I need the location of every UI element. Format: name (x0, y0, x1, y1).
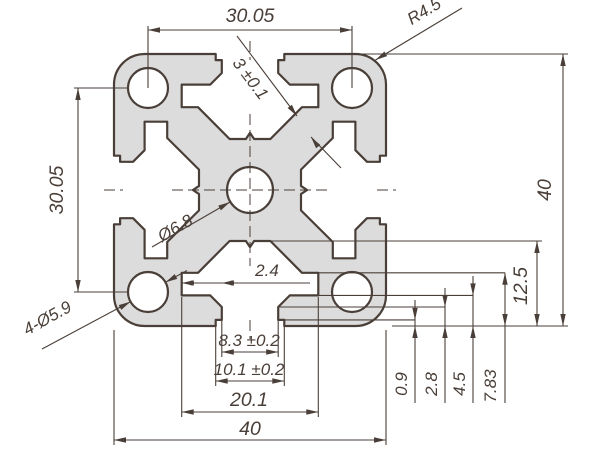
arrowhead (306, 409, 318, 414)
arrowhead (266, 349, 278, 354)
arrowhead (470, 283, 475, 295)
arrowhead (560, 314, 565, 326)
dim-web-thickness: 3 ±0.1 (229, 54, 273, 103)
dim-overall-width: 40 (239, 418, 261, 440)
dimension-dot (189, 281, 194, 286)
arrowhead (502, 273, 507, 285)
corner-hole-bottom-left (128, 272, 168, 312)
dim-overall-height: 40 (534, 179, 556, 201)
dimension-dot (229, 281, 234, 286)
corner-hole-bottom-right (332, 272, 372, 312)
dim-slot-depth: 12.5 (510, 267, 532, 305)
arrowhead (560, 54, 565, 66)
extrusion-profile-drawing: 30.05 30.05 R4.5 3 ±0.1 Ø6.8 4-Ø5.9 2.4 … (0, 0, 600, 450)
dim-corner-holes: 4-Ø5.9 (20, 297, 75, 339)
arrowhead (182, 409, 194, 414)
center-hole (227, 167, 273, 213)
arrowhead (222, 349, 234, 354)
arrowhead (374, 437, 386, 442)
arrowhead (502, 314, 507, 326)
dim-slot-opening: 8.3 ±0.2 (218, 331, 280, 350)
drawing-canvas: 30.05 30.05 R4.5 3 ±0.1 Ø6.8 4-Ø5.9 2.4 … (0, 0, 600, 450)
arrowhead (114, 437, 126, 442)
arrowhead (412, 326, 417, 338)
arrowhead (412, 308, 417, 320)
arrowhead (75, 88, 80, 100)
arrowhead (534, 314, 539, 326)
arrowhead (340, 27, 352, 32)
dim-corner-radius: R4.5 (404, 0, 445, 29)
dim-top-hole-spacing: 30.05 (226, 5, 275, 27)
arrowhead (272, 378, 284, 383)
dim-lip-recess-depth: 0.9 (392, 372, 411, 396)
arrowhead (442, 295, 447, 307)
dim-step-width: 2.4 (254, 261, 279, 280)
dim-lip-depth: 2.8 (422, 372, 441, 397)
arrowhead (534, 241, 539, 253)
dim-left-hole-spacing: 30.05 (46, 165, 68, 214)
dim-slot-mouth: 10.1 ±0.2 (214, 360, 285, 379)
arrowhead (470, 326, 475, 338)
arrowhead (216, 378, 228, 383)
arrowhead (148, 27, 160, 32)
arrowhead (75, 280, 80, 292)
dim-step-depth: 7.83 (481, 369, 500, 403)
dim-cavity-width: 20.1 (229, 389, 268, 411)
arrowhead (442, 326, 447, 338)
dim-lip-root-depth: 4.5 (450, 372, 469, 396)
